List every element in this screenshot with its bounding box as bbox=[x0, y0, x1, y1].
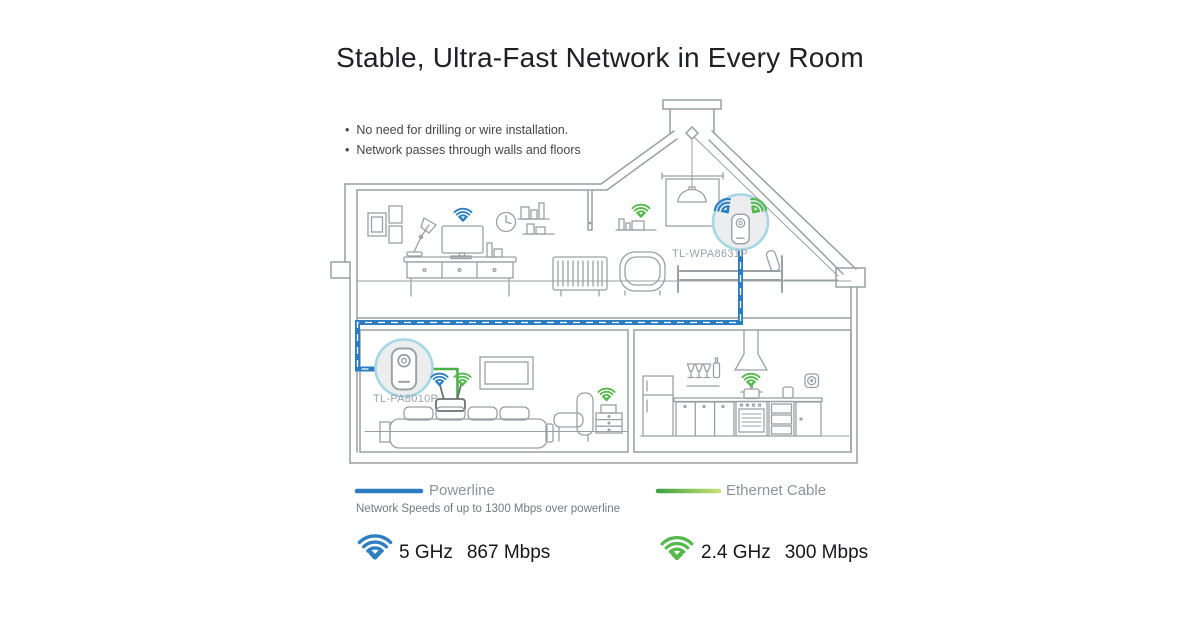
attic-partition-wall bbox=[588, 191, 592, 230]
wall-clock bbox=[497, 213, 516, 232]
wifi-icon bbox=[598, 389, 614, 400]
kitchen-box bbox=[634, 330, 851, 452]
page-title: Stable, Ultra-Fast Network in Every Room bbox=[0, 42, 1200, 74]
powerline-legend-label: Powerline bbox=[429, 482, 495, 499]
fridge bbox=[643, 376, 673, 436]
speed-24ghz: 2.4 GHz 300 Mbps bbox=[701, 542, 868, 564]
attic-armchair bbox=[620, 252, 665, 295]
ethernet-legend-label: Ethernet Cable bbox=[726, 482, 826, 499]
house-diagram bbox=[0, 0, 1200, 630]
pendant-lamp bbox=[678, 139, 706, 202]
wifi-icon bbox=[454, 209, 471, 221]
speed-5ghz-rate: 867 Mbps bbox=[467, 542, 550, 564]
wifi-icon bbox=[431, 374, 447, 385]
picture-frames bbox=[368, 206, 402, 243]
radiator bbox=[553, 257, 607, 296]
wifi-24ghz-icon bbox=[662, 538, 692, 558]
feature-bullets: No need for drilling or wire installatio… bbox=[345, 121, 581, 160]
wall-tv-frame bbox=[480, 357, 533, 389]
bed bbox=[380, 407, 553, 448]
speed-5ghz-band: 5 GHz bbox=[399, 542, 453, 564]
speed-5ghz: 5 GHz 867 Mbps bbox=[399, 542, 550, 564]
armchair bbox=[554, 393, 593, 441]
bedroom-device-label: TL-PA8010P bbox=[373, 393, 438, 405]
cooking-pot bbox=[741, 386, 762, 399]
base-cabinets bbox=[676, 402, 734, 436]
attic-device-label: TL-WPA8631P bbox=[672, 248, 748, 260]
powerline-adapter-icon bbox=[392, 349, 416, 390]
wifi-5ghz-icon bbox=[359, 536, 390, 557]
right-wall bbox=[851, 287, 857, 463]
drawer-unit bbox=[769, 402, 794, 437]
powerline-speed-note: Network Speeds of up to 1300 Mbps over p… bbox=[356, 503, 620, 515]
bedroom-powerline-adapter bbox=[376, 340, 433, 397]
glass-shelf bbox=[687, 358, 720, 386]
kitchen bbox=[643, 330, 822, 436]
desktop-monitor bbox=[442, 226, 483, 259]
dresser bbox=[596, 405, 622, 433]
powerline-adapter-icon bbox=[732, 214, 749, 243]
power-outlet-icon bbox=[805, 374, 819, 388]
attic-shelf bbox=[616, 219, 656, 230]
attic-powerline-adapter bbox=[713, 195, 769, 250]
speed-24ghz-band: 2.4 GHz bbox=[701, 542, 771, 564]
desk-lamp bbox=[407, 218, 436, 256]
wifi-icon bbox=[632, 205, 649, 217]
wifi-icon bbox=[742, 374, 759, 386]
range-hood bbox=[735, 330, 767, 370]
side-cabinet bbox=[796, 402, 821, 436]
speed-24ghz-rate: 300 Mbps bbox=[785, 542, 868, 564]
sideboard bbox=[404, 243, 516, 296]
canister bbox=[783, 387, 793, 398]
feature-bullet: Network passes through walls and floors bbox=[345, 141, 581, 161]
wall-shelves bbox=[518, 203, 554, 234]
roof-peak-joint bbox=[686, 127, 698, 139]
feature-bullet: No need for drilling or wire installatio… bbox=[345, 121, 581, 141]
living-room bbox=[368, 203, 607, 296]
oven bbox=[736, 402, 767, 437]
left-eave bbox=[331, 262, 350, 278]
